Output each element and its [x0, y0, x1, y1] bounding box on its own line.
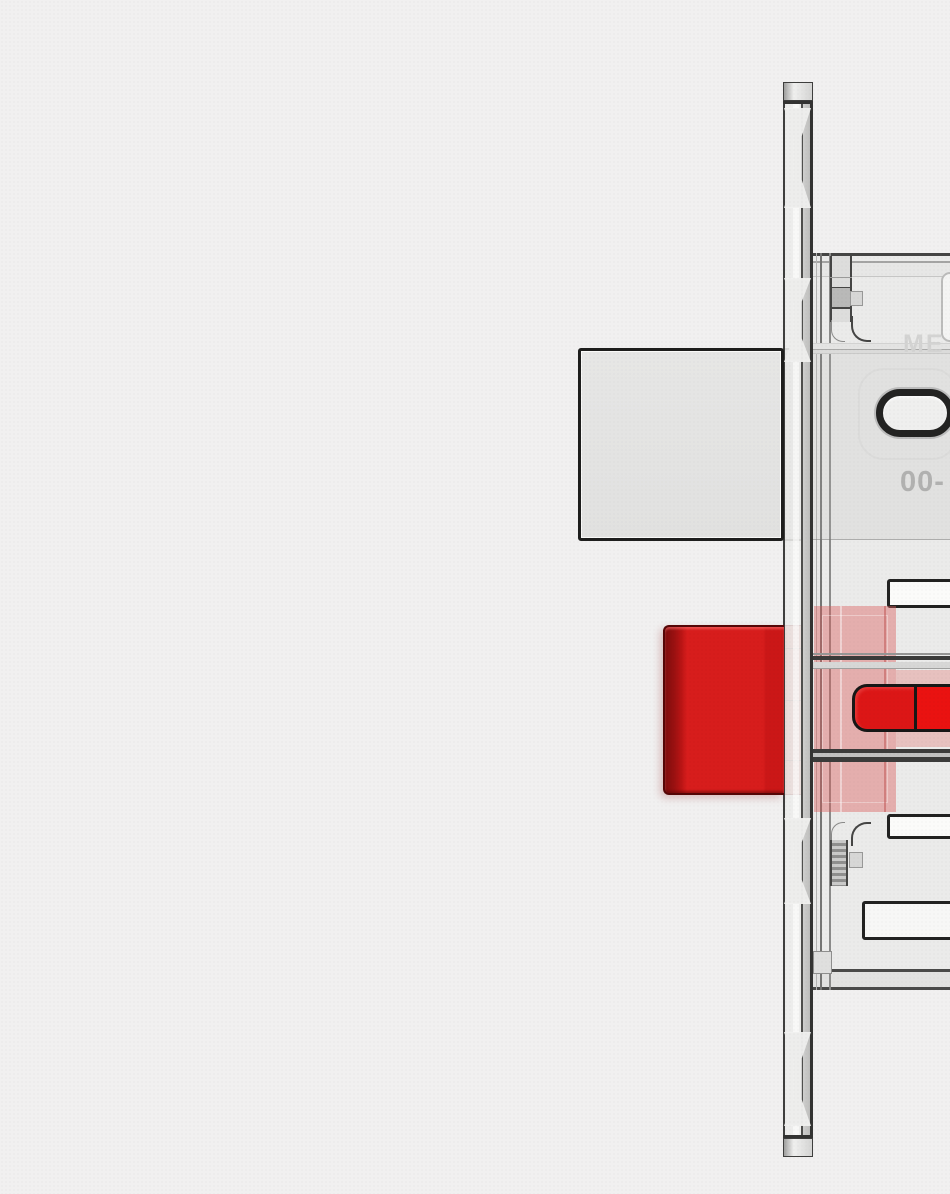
screw-post-top-line — [830, 277, 852, 278]
spindle-hub-pill-hole[interactable] — [876, 389, 950, 437]
screw-post-top-tab — [850, 291, 863, 306]
latch-guide-rail — [812, 757, 950, 762]
case-bottom-band — [812, 972, 950, 987]
case-edge-fillet — [831, 822, 845, 842]
case-pill-cutout-top-right — [941, 272, 950, 342]
faceplate-right-edge — [810, 82, 813, 1157]
case-model-embossed-text: 00- — [900, 466, 950, 499]
latch-bolt-head[interactable] — [663, 625, 784, 795]
screw-post-top-line — [830, 307, 852, 309]
screw-post-bottom-thread — [830, 840, 848, 886]
latch-guide-rail — [812, 653, 950, 655]
faceplate-top-cap — [783, 82, 813, 101]
deadbolt-head[interactable] — [578, 348, 784, 541]
faceplate-top-divider — [783, 101, 813, 104]
case-slot-upper — [887, 579, 950, 608]
faceplate-bottom-cap — [783, 1138, 813, 1157]
latch-assembly-edge — [840, 606, 842, 812]
case-slot-bottom — [862, 901, 950, 940]
case-slot-lower — [887, 814, 950, 839]
lock-render-canvas: ME 00- — [0, 0, 950, 1194]
screw-post-bottom-tab — [849, 852, 863, 868]
latch-guide-rail — [812, 662, 950, 669]
latch-cam-right-section — [917, 687, 950, 729]
faceplate-highlight — [793, 82, 799, 1157]
latch-guide-rail — [812, 656, 950, 660]
screw-post-top-nut — [832, 288, 850, 307]
faceplate-side-face — [803, 82, 810, 1157]
case-bottom-step — [813, 951, 832, 974]
